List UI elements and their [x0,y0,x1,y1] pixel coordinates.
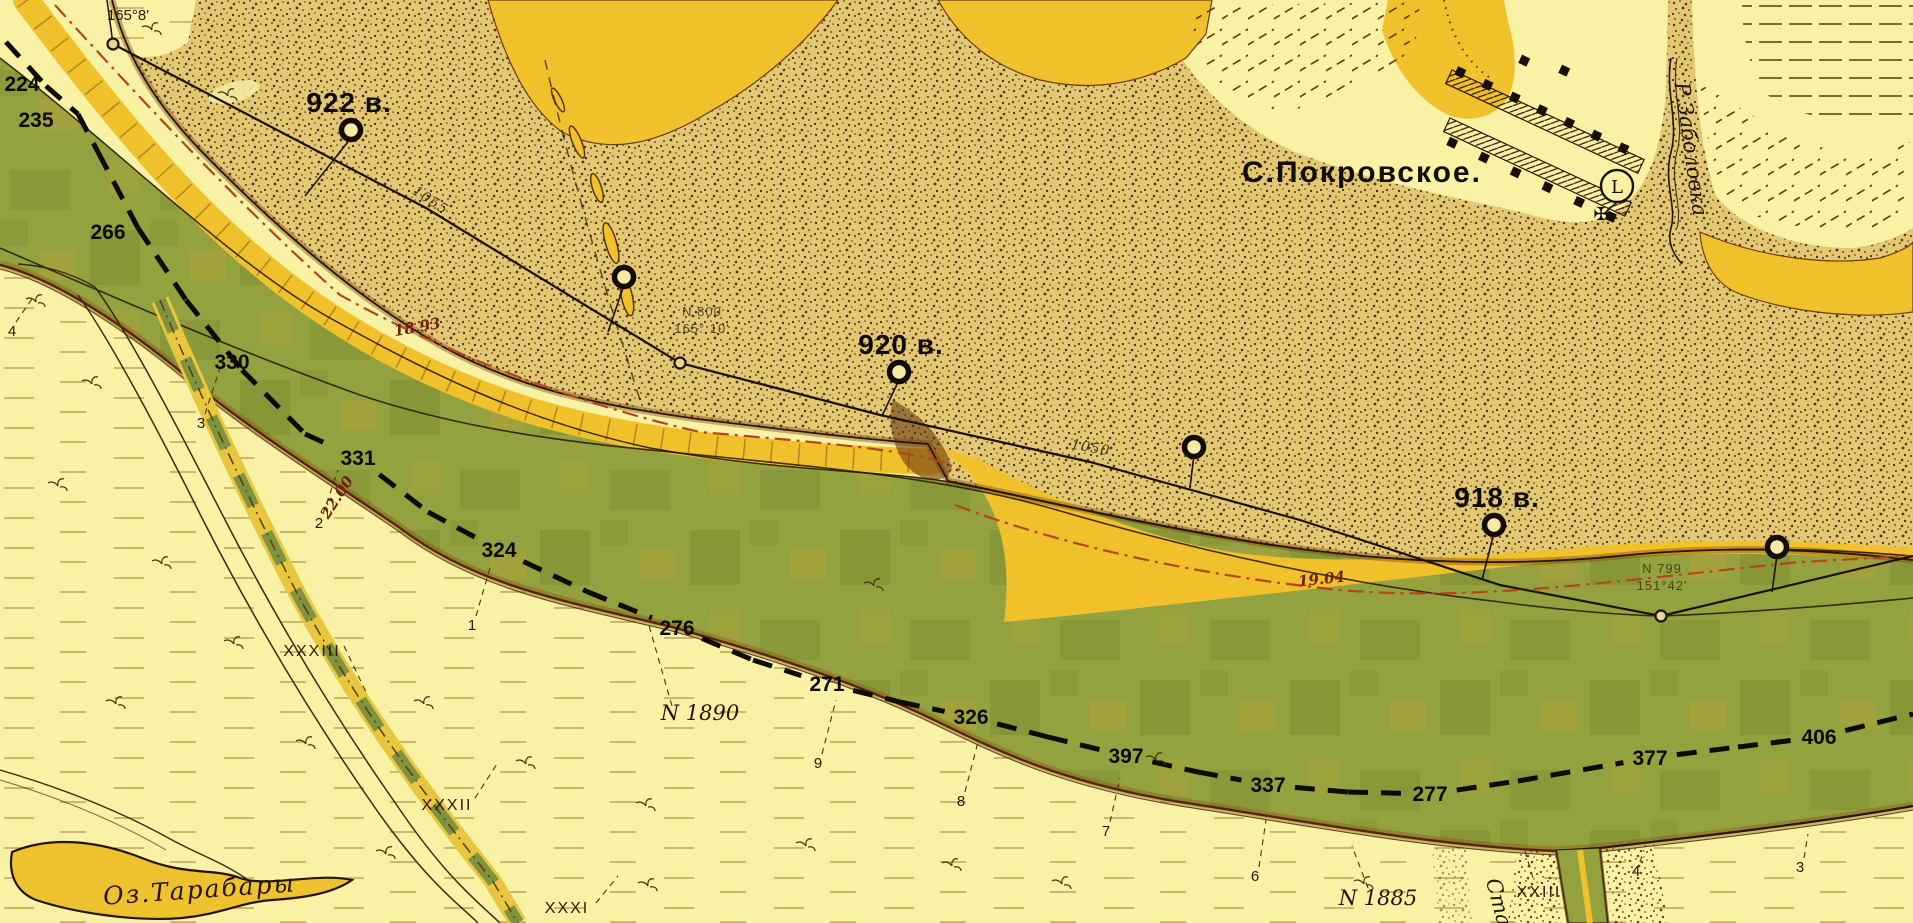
fairway-number: 397 [1108,745,1143,768]
sounding-number: 9 [814,755,822,772]
verst-label: 922 в. [306,87,392,118]
fairway-number: 324 [481,539,516,562]
landmark-letter: L [1611,177,1623,198]
fairway-number: 271 [809,673,844,696]
station-name: N 800 [682,304,722,319]
sounding-number: 7 [1102,823,1110,840]
fairway-number: 337 [1250,774,1285,797]
sounding-number: 3 [197,415,205,432]
profile-number: N 1885 [1338,886,1418,910]
sounding-number: 8 [957,793,965,810]
verst-label: 920 в. [858,329,944,360]
fairway-number: 235 [18,109,53,132]
sounding-number: 4 [1632,863,1640,880]
bearing-label: 165°8' [107,7,149,24]
verst-label: 918 в. [1454,482,1540,513]
village-label: С.Покровское. [1242,156,1482,189]
fairway-number: 276 [659,617,694,640]
map-canvas: L ✠ 165°8' С.Покровское. Оз.Тарабары Р.З… [0,0,1913,923]
fairway-number: 331 [340,447,375,470]
church-cross-icon: ✠ [1593,204,1608,225]
station-name: N 799 [1642,561,1682,576]
section-roman-numeral: XXXI [545,900,589,917]
station-circle [108,39,119,50]
section-roman-numeral: XXXII [422,797,473,814]
fairway-number: 266 [90,221,125,244]
sounding-number: 3 [1796,859,1804,876]
verst-post-icon [615,268,634,287]
section-roman-numeral: XXXIII [283,643,340,660]
station-bearing: 165° 10' [674,321,729,336]
verst-post-icon [1485,516,1504,535]
sounding-number: 4 [8,323,16,340]
fairway-number: 224 [4,73,39,96]
section-roman-numeral: XXIII [1517,884,1562,901]
fairway-number: 406 [1801,726,1836,749]
sounding-number: 6 [1251,868,1259,885]
sounding-number: 2 [315,515,323,532]
station-circle [675,358,686,369]
fairway-number: 326 [953,706,988,729]
historical-river-map: L ✠ 165°8' С.Покровское. Оз.Тарабары Р.З… [0,0,1913,923]
verst-post-icon [890,363,909,382]
station-bearing: 151°42' [1637,578,1688,593]
fairway-number: 377 [1632,747,1667,770]
station-circle [1656,611,1667,622]
fairway-number: 330 [214,351,249,374]
verst-post-icon [342,121,361,140]
verst-post-icon [1768,538,1787,557]
profile-number: N 1890 [660,701,740,725]
verst-post-icon [1185,438,1204,457]
fairway-number: 277 [1412,783,1447,806]
sounding-number: 1 [468,617,476,634]
